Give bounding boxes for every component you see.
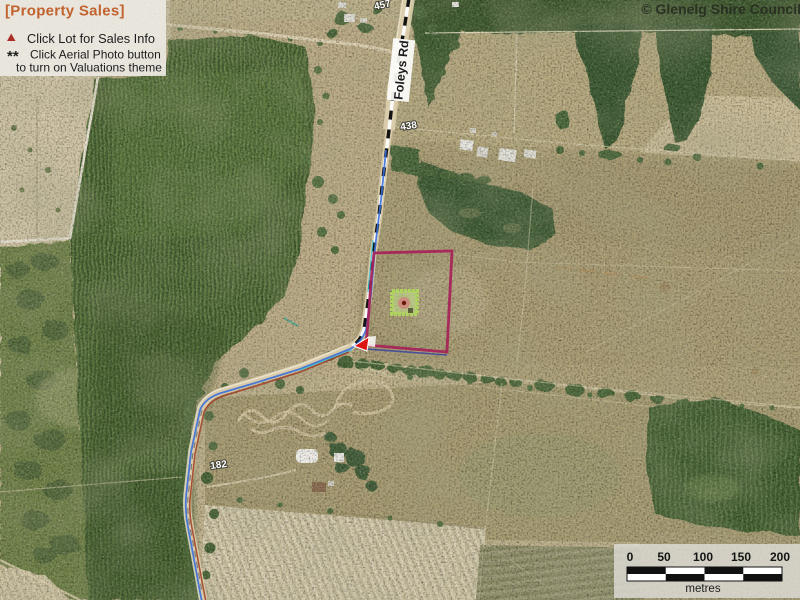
- svg-text:[Property Sales]: [Property Sales]: [5, 3, 125, 20]
- svg-text:50: 50: [657, 550, 671, 564]
- svg-text:150: 150: [731, 550, 751, 564]
- svg-text:to turn on Valuations theme: to turn on Valuations theme: [16, 61, 162, 75]
- svg-text:100: 100: [693, 550, 713, 564]
- svg-text:Click Lot for Sales Info: Click Lot for Sales Info: [27, 31, 155, 46]
- svg-text:Click Aerial Photo button: Click Aerial Photo button: [30, 48, 161, 62]
- svg-text:0: 0: [627, 550, 634, 564]
- svg-text:© Glenelg Shire Council: © Glenelg Shire Council: [641, 1, 800, 17]
- svg-text:200: 200: [770, 550, 790, 564]
- svg-text:metres: metres: [685, 583, 720, 595]
